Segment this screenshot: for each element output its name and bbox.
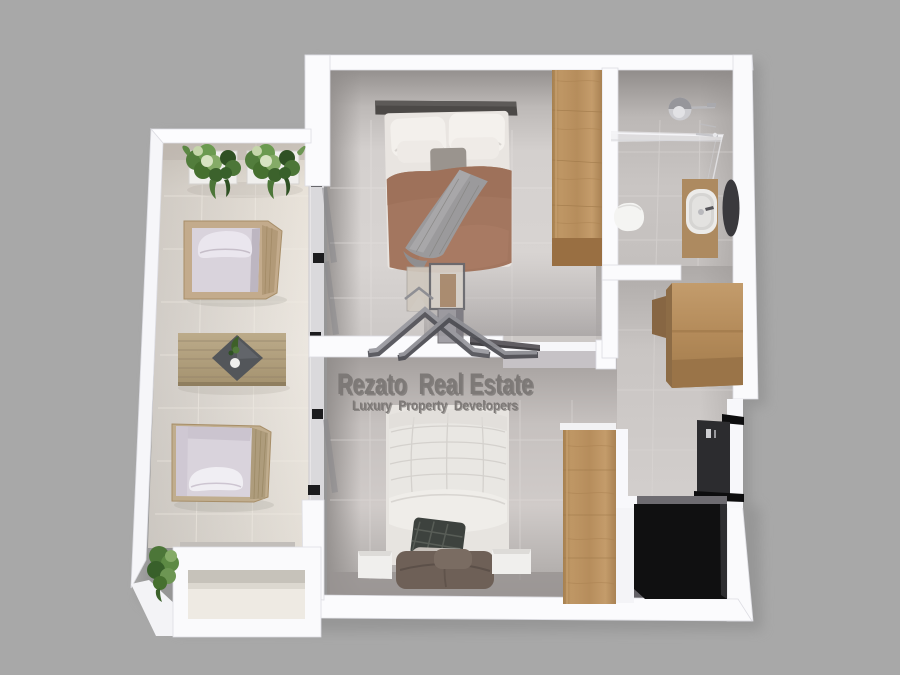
svg-text:Rezato Real Estate: Rezato Real Estate (337, 368, 533, 401)
svg-text:Luxury Property Developers: Luxury Property Developers (352, 398, 518, 413)
